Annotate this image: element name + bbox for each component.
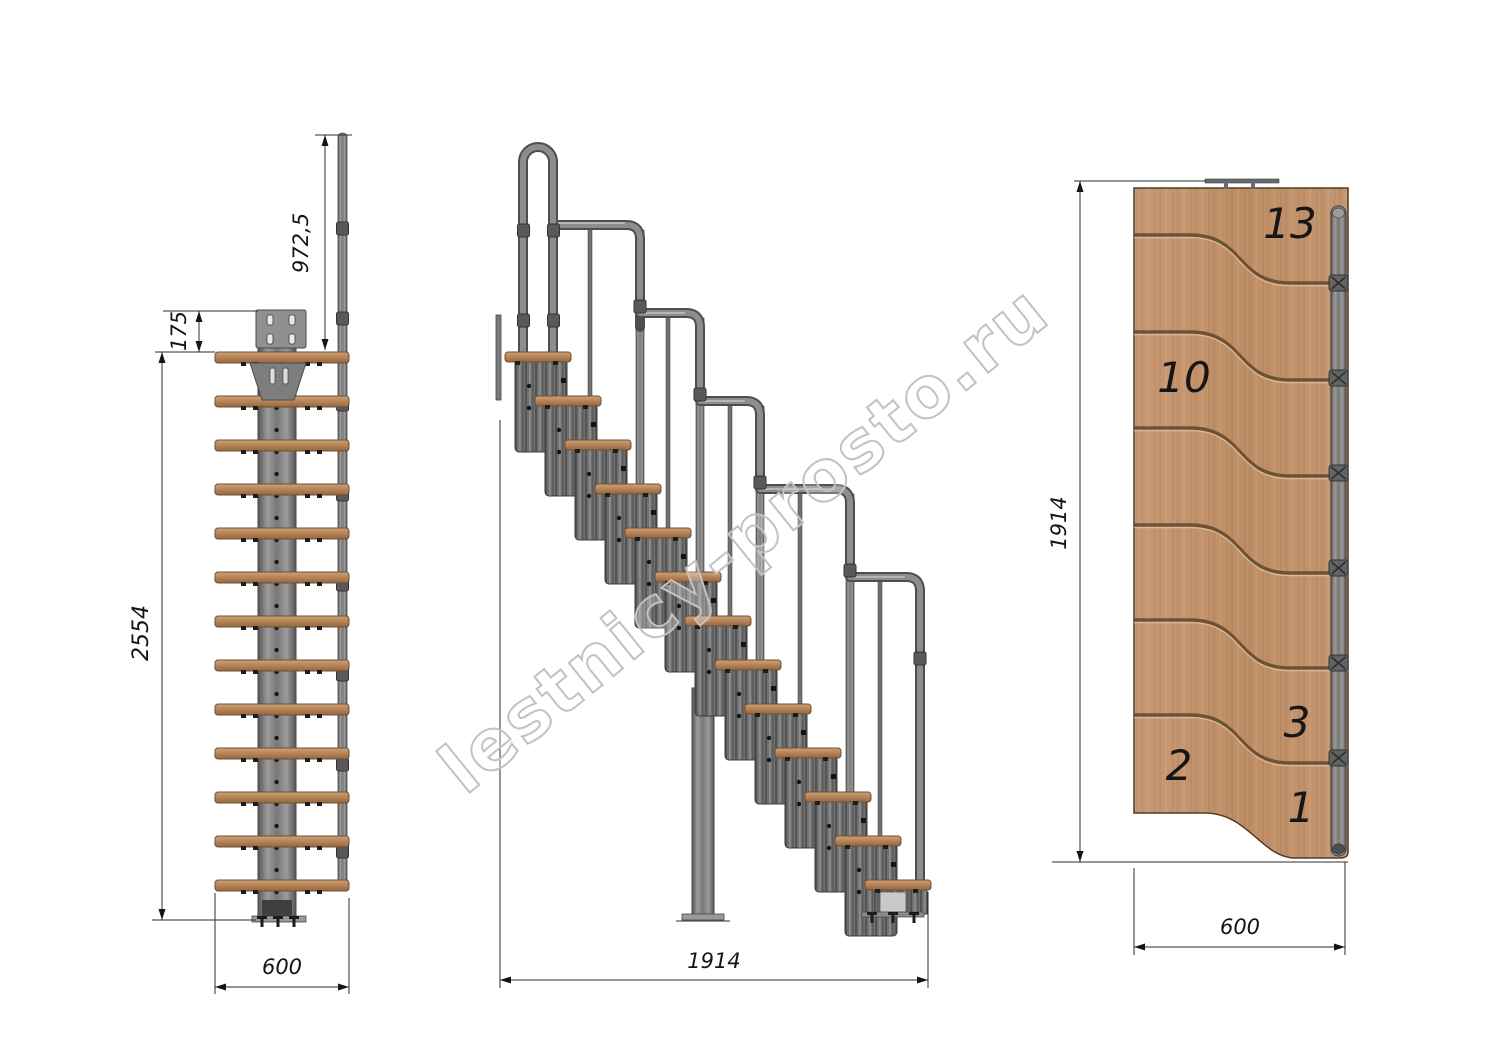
baluster-sleeve (337, 312, 349, 325)
rail-knot (1329, 275, 1348, 291)
plate-slot (289, 315, 295, 325)
rail-sleeve (548, 314, 560, 327)
dim-plan-width: 600 (1134, 862, 1345, 955)
rail-sleeve (518, 224, 530, 237)
plate-slot (267, 315, 273, 325)
plan-view: 13 10 3 2 1 1914 600 (1047, 179, 1348, 955)
front-central-column (258, 348, 296, 918)
floor-anchor (909, 912, 919, 923)
plate-slot (289, 334, 295, 344)
dim-label-total-run: 1914 (687, 949, 740, 973)
dim-label-rail-height: 972,5 (289, 213, 313, 273)
front-baluster-post (338, 133, 347, 891)
tread-number-10: 10 (1157, 353, 1210, 402)
technical-drawing-canvas: 972,5 175 2554 600 (0, 0, 1500, 1061)
rail-knot (1329, 560, 1348, 576)
dim-label-total-height: 2554 (129, 605, 154, 661)
rail-sleeve (844, 564, 856, 577)
tread-number-1: 1 (1288, 783, 1315, 832)
dim-label-plate-offset: 175 (167, 311, 191, 351)
dim-label-plan-width: 600 (1220, 915, 1260, 939)
support-post (692, 688, 714, 916)
column-base-cap (262, 900, 292, 916)
gusset-slot (283, 368, 288, 384)
support-post-base (682, 914, 724, 920)
handrail-top-loop (518, 147, 560, 354)
rail-sleeve (548, 224, 560, 237)
rail-knot (1329, 750, 1348, 766)
rail-sleeve (518, 314, 530, 327)
front-view: 972,5 175 2554 600 (129, 133, 352, 994)
wall-mounting-plate (256, 310, 306, 348)
dim-label-front-width: 600 (262, 955, 302, 979)
tread-number-2: 2 (1166, 741, 1193, 790)
plate-slot (267, 334, 273, 344)
rail-sleeve (914, 652, 926, 665)
rail-sleeve (694, 388, 706, 401)
rail-knot (1329, 655, 1348, 671)
plan-handrail (1329, 206, 1348, 856)
rail-knot (1329, 370, 1348, 386)
dim-label-plan-length: 1914 (1047, 496, 1071, 549)
dim-front-total-height: 2554 (129, 352, 215, 920)
wall-plate (496, 315, 501, 400)
tread-number-13: 13 (1263, 199, 1316, 248)
tread-number-3: 3 (1284, 698, 1311, 747)
rail-knot (1329, 465, 1348, 481)
rail-sleeve (634, 300, 646, 313)
drawing-page: 972,5 175 2554 600 (0, 0, 1500, 1061)
baluster-thin (878, 577, 882, 837)
dim-front-plate-offset: 175 (163, 311, 258, 352)
baluster-sleeve (337, 758, 349, 771)
gusset-slot (270, 368, 275, 384)
baluster-sleeve (337, 222, 349, 235)
